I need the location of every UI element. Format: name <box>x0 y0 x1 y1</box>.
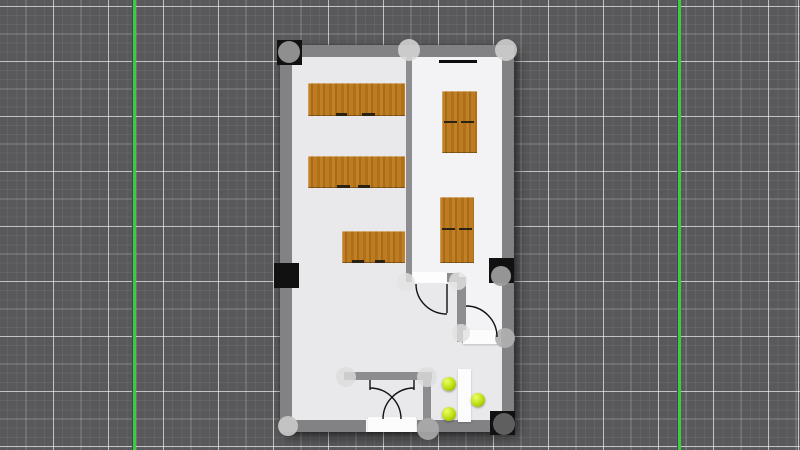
selection-handle[interactable] <box>398 39 420 61</box>
desk-edge-mark <box>459 228 472 230</box>
side-table[interactable] <box>458 369 471 422</box>
guide-line <box>133 0 136 450</box>
selection-handle[interactable] <box>336 367 356 387</box>
door-opening-interior[interactable] <box>412 272 447 283</box>
selection-handle[interactable] <box>278 41 300 63</box>
desk-right-2[interactable] <box>440 197 474 263</box>
double-door-panel[interactable] <box>368 417 416 432</box>
selection-handle[interactable] <box>495 39 517 61</box>
wall-right[interactable] <box>502 45 514 432</box>
selection-handle[interactable] <box>397 273 415 291</box>
selection-handle[interactable] <box>452 324 470 342</box>
selection-handle[interactable] <box>449 272 467 290</box>
selection-handle[interactable] <box>417 367 437 387</box>
selection-handle[interactable] <box>495 328 515 348</box>
selection-handle[interactable] <box>493 413 515 435</box>
desk-edge-mark <box>444 121 457 123</box>
chair-sphere[interactable] <box>442 377 456 391</box>
wall-left[interactable] <box>280 45 292 432</box>
desk-row-2[interactable] <box>308 156 405 188</box>
desk-edge-mark <box>442 228 455 230</box>
desk-row-3[interactable] <box>342 231 405 263</box>
desk-edge-mark <box>337 185 350 188</box>
wall-marker-left[interactable] <box>274 263 299 288</box>
selection-handle[interactable] <box>417 418 439 440</box>
wall-board[interactable] <box>439 60 477 63</box>
plan-canvas[interactable] <box>0 0 800 450</box>
desk-edge-mark <box>362 113 375 116</box>
desk-edge-mark <box>352 260 364 263</box>
guide-line <box>678 0 681 450</box>
desk-edge-mark <box>336 113 347 116</box>
selection-handle[interactable] <box>278 416 298 436</box>
desk-edge-mark <box>358 185 370 188</box>
chair-sphere[interactable] <box>442 407 456 421</box>
desk-edge-mark <box>461 121 474 123</box>
selection-handle[interactable] <box>491 266 511 286</box>
wall-top[interactable] <box>280 45 514 57</box>
wall-divider[interactable] <box>406 57 412 277</box>
desk-edge-mark <box>375 260 385 263</box>
desk-row-1[interactable] <box>308 83 405 116</box>
chair-sphere[interactable] <box>471 393 485 407</box>
